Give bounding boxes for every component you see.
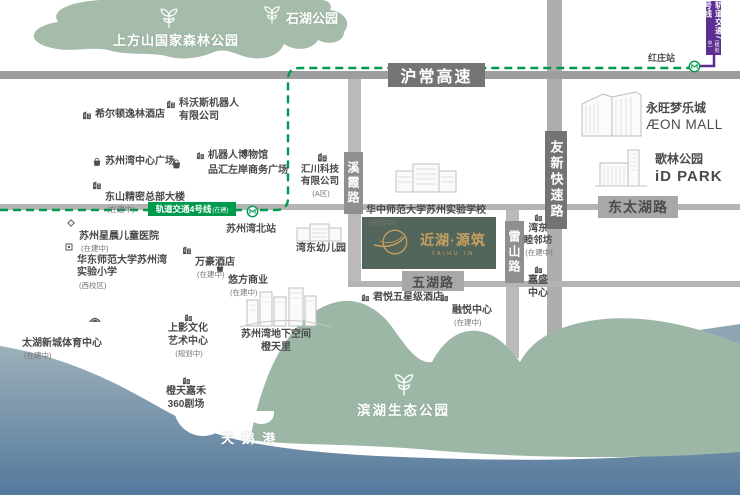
road-label-wuhu: 五湖路 — [402, 271, 464, 291]
landmark-name: 品汇左岸商务广场 — [208, 165, 288, 178]
binhu-park-shape — [250, 301, 740, 457]
park-name: 上方山国家森林公园 — [113, 33, 239, 48]
building-icon — [440, 292, 449, 302]
landmark-aeon: 永旺梦乐城 ÆON MALL — [646, 101, 723, 134]
landmark-note: (西校区) — [79, 281, 107, 290]
landmark-name: 嘉盛 中心 — [528, 275, 548, 300]
landmark-ecnu-primary: 华东师范大学苏州湾 实验小学 (西校区) — [64, 242, 167, 292]
station-label-north: 苏州湾北站 — [226, 220, 276, 235]
metro-station-icon-north — [247, 206, 257, 216]
landmark-note: (规划中) — [175, 349, 203, 358]
building-icon — [166, 98, 176, 109]
project-name: 近湖·源筑 — [420, 230, 486, 250]
landmark-name-latin: iD PARK — [655, 168, 723, 187]
landmark-name: 湾东幼儿园 — [296, 243, 346, 256]
aeon-mall-illustration — [582, 92, 641, 136]
road-name: 五湖路 — [412, 272, 454, 291]
landmark-name: 苏州湾中心广场 — [105, 156, 175, 169]
project-logo-text: 近湖·源筑 TAIHU IN — [420, 230, 486, 257]
park-label-binhu: 滨湖生态公园 — [357, 399, 450, 419]
building-icon — [92, 179, 102, 190]
landmark-name: 东山精密总部大楼 — [105, 192, 185, 203]
road-label-dongtaihu: 东太湖路 — [598, 196, 678, 218]
station-label-hongzhuang: 红庄站 — [648, 51, 675, 64]
landmark-name: 橙天嘉禾 360剧场 — [166, 386, 206, 411]
landmark-name: 太湖新城体育中心 — [22, 338, 102, 349]
building-icon-huichuan — [318, 153, 327, 162]
road-name: 东太湖路 — [608, 197, 668, 217]
park-name: 滨湖生态公园 — [357, 403, 450, 418]
landmark-name: 科沃斯机器人 有限公司 — [179, 98, 239, 123]
landmark-jiasheng: 嘉盛 中心 — [516, 264, 560, 300]
rail-line7-label: 轨道交通7号线 (规划中) — [706, 1, 721, 55]
mall-icon — [215, 262, 225, 273]
landmark-rongyue: 融悦中心 (在建中) — [440, 292, 492, 330]
kindergarten-illustration — [297, 224, 341, 241]
landmark-center-plaza: 苏州湾中心广场 — [92, 156, 175, 169]
landmark-hilton: 希尔顿逸林酒店 — [82, 109, 165, 122]
landmark-kindergarten: 湾东幼儿园 — [296, 243, 346, 256]
landmark-theater360: 橙天嘉禾 360剧场 — [154, 375, 218, 411]
diamond-icon — [66, 218, 76, 228]
building-icon — [361, 292, 370, 302]
square-icon — [64, 242, 74, 252]
landmark-name: 苏州星晨儿童医院 — [79, 231, 159, 242]
landmark-name: 华东师范大学苏州湾 实验小学 — [77, 255, 167, 279]
landmark-kewosi: 科沃斯机器人 有限公司 — [166, 98, 239, 123]
landmark-note: (在建中) — [525, 248, 553, 257]
landmark-name: 融悦中心 — [452, 305, 492, 316]
huchang-road — [0, 71, 740, 79]
rail-line-name: 轨道交通7号线 — [703, 1, 725, 40]
landmark-note: (在建中) — [230, 288, 258, 297]
landmark-school: 华中师范大学苏州实验学校 (规划中) — [366, 192, 486, 230]
landmark-dongshan: 东山精密总部大楼 (在建中) — [92, 179, 185, 217]
metro-station-icon-hongzhuang — [689, 61, 699, 71]
landmark-name: 湾东 睦邻坊 — [524, 223, 553, 247]
landmark-note: (在建中) — [454, 318, 482, 327]
water-label-tiane: 天 鹅 港 — [221, 428, 277, 447]
landmark-note: (A区) — [312, 189, 330, 198]
rail-line7-path — [700, 54, 714, 66]
stadium-icon-sports-center — [89, 318, 101, 322]
landmark-name: 苏州湾地下空间 橙天里 — [241, 329, 311, 354]
landmark-mulinfang: 湾东 睦邻坊 (在建中) — [516, 212, 560, 257]
landmark-name: 君悦五星级酒店 — [373, 292, 443, 305]
landmark-name: 机器人博物馆 — [208, 150, 268, 163]
idpark-illustration — [595, 150, 647, 186]
station-name: 红庄站 — [648, 53, 675, 63]
landmark-robot-museum: 机器人博物馆 — [196, 150, 268, 163]
landmark-name-latin: ÆON MALL — [646, 117, 723, 134]
landmark-shangying: 上影文化 艺术中心 (规划中) — [156, 312, 220, 358]
landmark-name: 上影文化 艺术中心 — [168, 323, 208, 348]
landmark-name: 歌林公园 — [655, 152, 703, 167]
building-icon — [196, 150, 205, 160]
rail-line-note: (在建) — [212, 205, 228, 214]
landmark-name: 希尔顿逸林酒店 — [95, 109, 165, 122]
building-icon — [534, 264, 543, 274]
landmark-note: (规划中) — [368, 218, 396, 227]
rail-line-note: (规划中) — [707, 40, 721, 55]
building-icon — [182, 244, 192, 255]
station-name: 苏州湾北站 — [226, 224, 276, 235]
location-map: 沪常高速 友新快速路 东太湖路 五湖路 溪霞路 雷山路 轨道交通4号线 (在建)… — [0, 0, 740, 495]
landmark-huichuan: 汇川科技 有限公司 (A区) — [292, 164, 348, 198]
landmark-note: (在建中) — [24, 351, 52, 360]
road-label-huchang: 沪常高速 — [388, 63, 485, 87]
park-name: 石湖公园 — [286, 11, 338, 26]
landmark-name: 悠方商业 — [228, 275, 268, 286]
mall-icon — [92, 156, 102, 167]
project-logo-icon — [372, 226, 414, 260]
project-name-latin: TAIHU IN — [431, 251, 474, 257]
school-illustration — [396, 164, 456, 192]
park-label-shihu: 石湖公园 — [286, 8, 338, 27]
park-label-shangfangshan: 上方山国家森林公园 — [113, 30, 239, 49]
road-name: 友新快速路 — [547, 140, 566, 220]
landmark-name: 华中师范大学苏州实验学校 — [366, 205, 486, 216]
landmark-name: 汇川科技 有限公司 — [301, 164, 339, 188]
road-name: 沪常高速 — [400, 63, 472, 87]
landmark-name: 永旺梦乐城 — [646, 101, 706, 116]
landmark-note: (在建中) — [107, 205, 135, 214]
landmark-sports-center: 太湖新城体育中心 (在建中) — [22, 325, 102, 363]
landmark-idpark: 歌林公园 iD PARK — [655, 152, 723, 187]
landmark-ufang: 悠方商业 (在建中) — [215, 262, 268, 300]
landmark-pinhui: 品汇左岸商务广场 — [208, 165, 288, 178]
landmark-underground: 苏州湾地下空间 橙天里 — [218, 329, 334, 354]
building-icon — [184, 312, 193, 322]
building-icon — [182, 375, 191, 385]
water-name: 天 鹅 港 — [221, 431, 277, 446]
building-icon — [82, 109, 92, 120]
landmark-junyue: 君悦五星级酒店 — [361, 292, 443, 305]
building-icon — [534, 212, 543, 222]
